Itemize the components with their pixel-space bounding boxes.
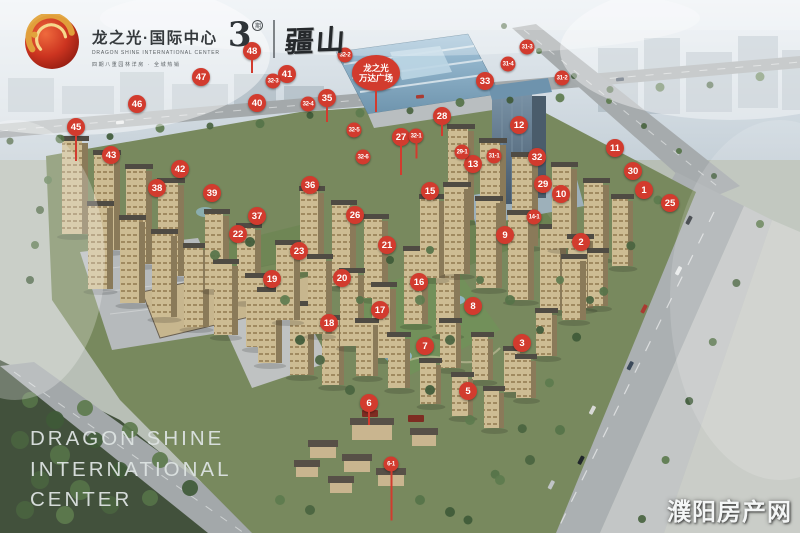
building-marker-15: 15 [421,182,439,200]
watermark: 濮阳房产网 [667,492,792,527]
building-marker-33: 33 [476,72,494,90]
building-marker-32-4: 32-4 [301,97,316,112]
building-marker-1: 1 [635,181,653,199]
marker-stem [415,143,417,159]
marker-stem [368,411,370,425]
logo-divider [273,20,275,58]
building-marker-32-1: 32-1 [409,129,424,144]
building-marker-8: 8 [464,297,482,315]
mall-label: 龙之光 万达广场 [352,55,400,91]
marker-stem [400,145,402,175]
building-marker-47: 47 [192,68,210,86]
mall-label-line1: 龙之光 [352,63,400,73]
building-marker-29: 29 [534,175,552,193]
building-marker-36: 36 [301,176,319,194]
logo-text: 龙之光·国际中心 DRAGON SHINE INTERNATIONAL CENT… [92,26,220,68]
building-marker-3: 3 [513,334,531,352]
project-name-line2: INTERNATIONAL [30,455,232,486]
building-marker-32-3: 32-3 [266,74,281,89]
building-marker-14-1: 14-1 [527,210,542,225]
logo-title-cn: 龙之光·国际中心 [92,26,220,48]
building-marker-20: 20 [333,269,351,287]
phase-number: 3 期 [228,18,264,52]
building-marker-40: 40 [248,94,266,112]
dragon-logo-icon [24,14,80,70]
marker-stem [441,124,443,136]
building-marker-26: 26 [346,206,364,224]
building-marker-17: 17 [371,301,389,319]
building-marker-31-1: 31-1 [487,149,502,164]
building-marker-2: 2 [572,233,590,251]
building-marker-32-6: 32-6 [356,150,371,165]
building-marker-28: 28 [433,107,451,125]
aerial-site-plan: 1235678910111213151617181920212223252627… [0,0,800,533]
building-marker-10: 10 [552,185,570,203]
building-marker-31-4: 31-4 [501,57,516,72]
logo: 龙之光·国际中心 DRAGON SHINE INTERNATIONAL CENT… [24,14,348,70]
building-marker-31-2: 31-2 [555,71,570,86]
building-marker-21: 21 [378,236,396,254]
sub-brand-name: 疆山 [284,17,349,61]
project-name-line1: DRAGON SHINE [30,424,232,455]
building-marker-38: 38 [148,179,166,197]
building-marker-9: 9 [496,226,514,244]
marker-stem [390,471,392,521]
building-marker-12: 12 [510,116,528,134]
building-marker-16: 16 [410,273,428,291]
logo-title-en: DRAGON SHINE INTERNATIONAL CENTER [92,50,220,56]
building-marker-6-1: 6-1 [384,457,399,472]
building-marker-25: 25 [661,194,679,212]
building-marker-39: 39 [203,184,221,202]
building-marker-19: 19 [263,270,281,288]
building-marker-42: 42 [171,160,189,178]
building-marker-29-1: 29-1 [455,145,470,160]
logo-tagline: 四期八重园林洋房 · 全城热销 [92,61,220,68]
building-marker-45: 45 [67,118,85,136]
marker-stem [75,135,77,161]
building-marker-5: 5 [459,382,477,400]
building-marker-6: 6 [360,394,378,412]
project-name-en: DRAGON SHINE INTERNATIONAL CENTER [30,424,232,516]
building-marker-31-3: 31-3 [520,40,535,55]
building-marker-23: 23 [290,242,308,260]
building-marker-22: 22 [229,225,247,243]
building-marker-46: 46 [128,95,146,113]
building-marker-7: 7 [416,337,434,355]
building-marker-18: 18 [320,314,338,332]
building-marker-43: 43 [102,146,120,164]
building-marker-11: 11 [606,139,624,157]
building-marker-30: 30 [624,162,642,180]
project-name-line3: CENTER [30,485,232,516]
building-marker-27: 27 [392,128,410,146]
building-marker-32: 32 [528,148,546,166]
mall-label-line2: 万达广场 [352,73,400,83]
building-marker-32-5: 32-5 [347,123,362,138]
marker-stem [375,90,377,112]
building-marker-35: 35 [318,89,336,107]
marker-stem [326,106,328,122]
building-marker-37: 37 [248,207,266,225]
